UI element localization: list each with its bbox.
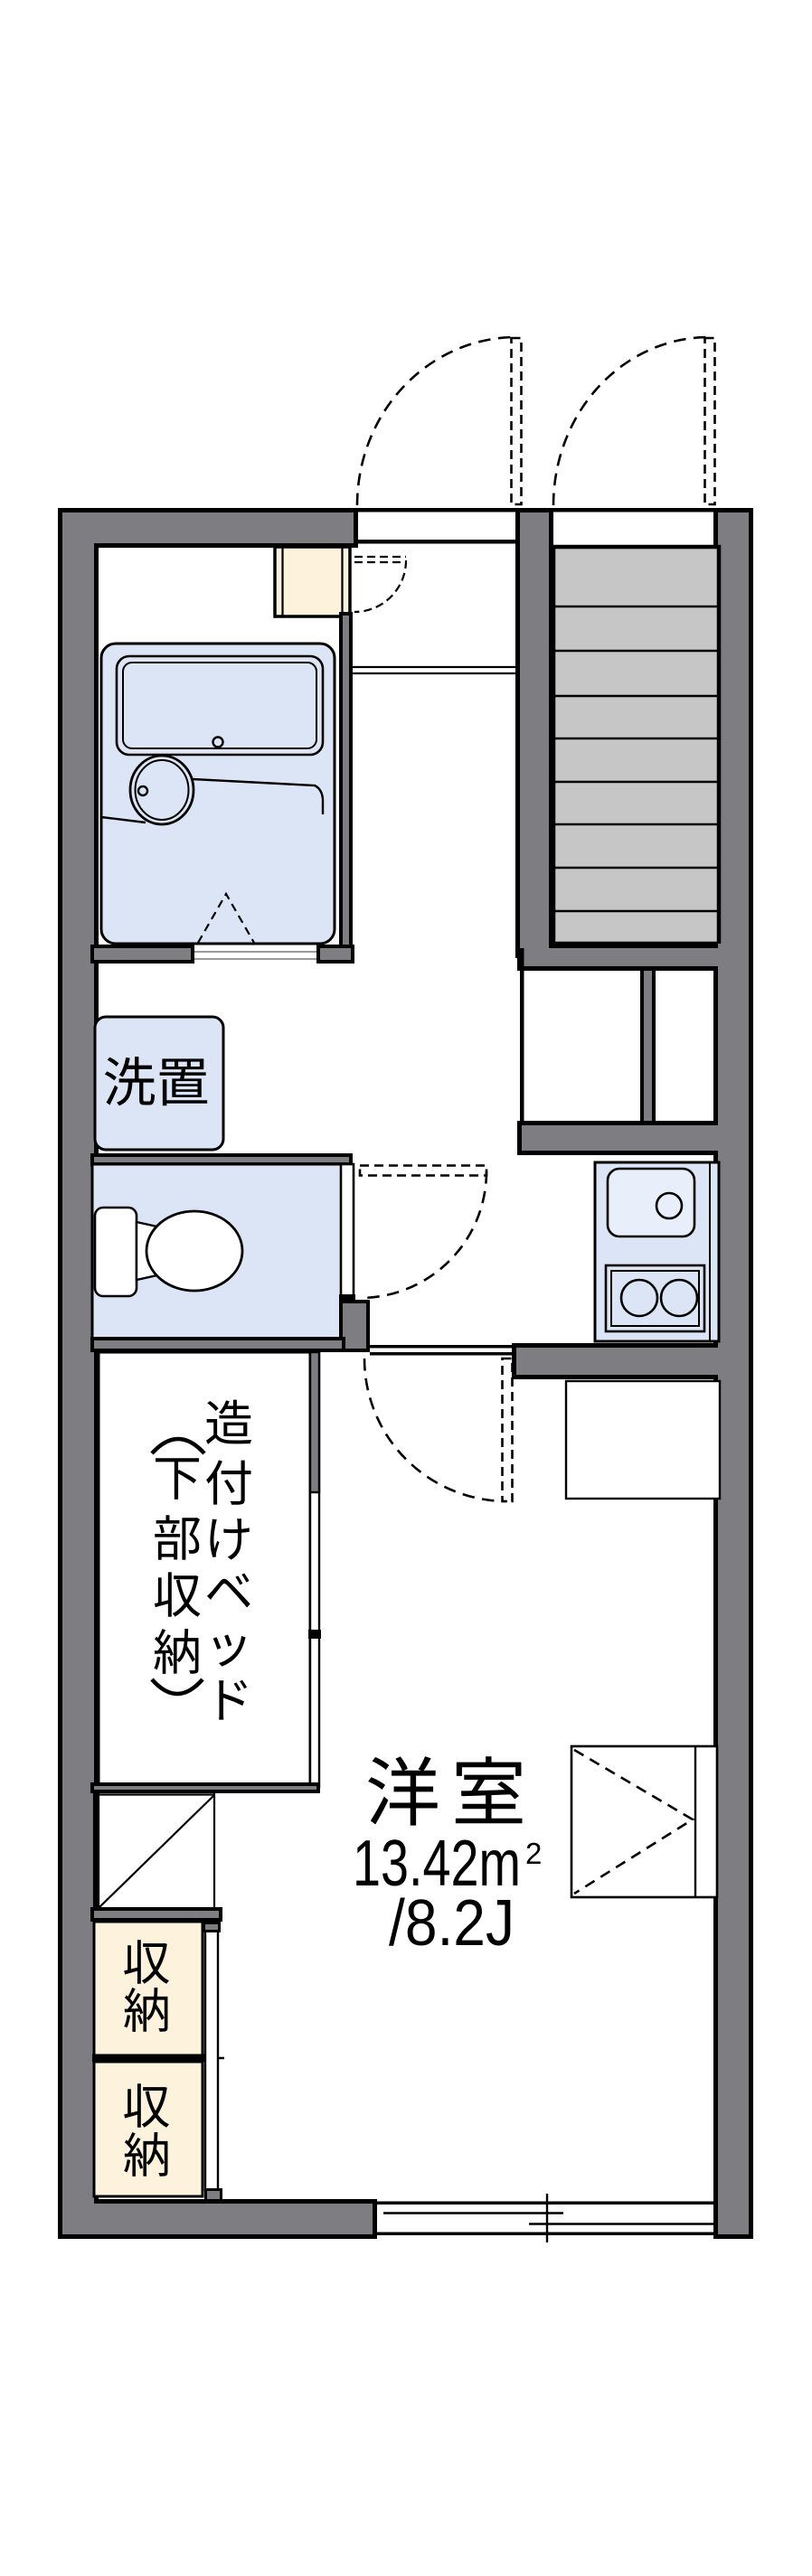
svg-text:/8.2J: /8.2J (389, 1887, 515, 1960)
svg-text:2: 2 (525, 1837, 542, 1870)
